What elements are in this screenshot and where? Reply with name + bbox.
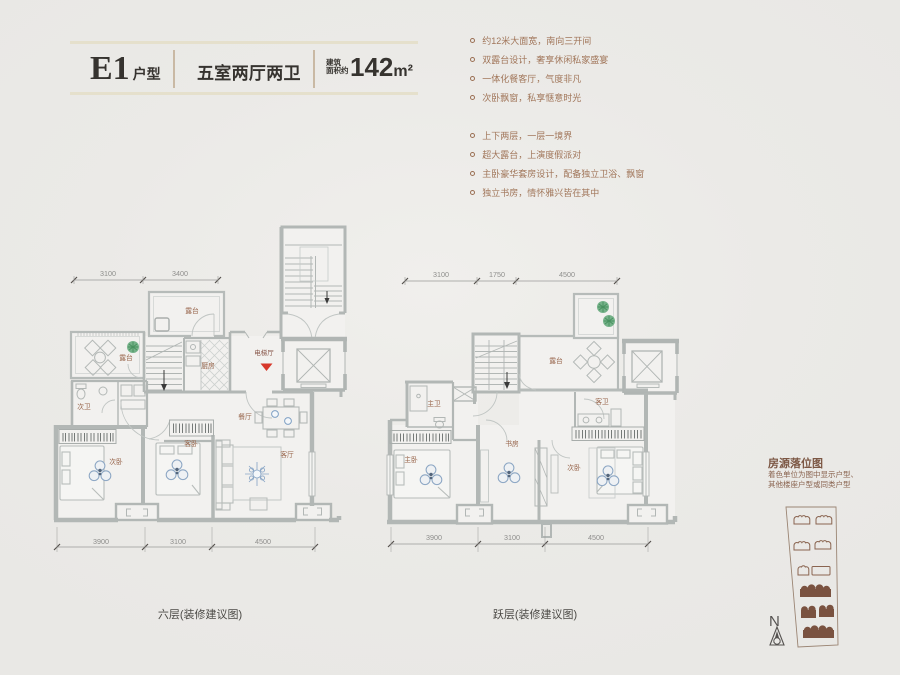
svg-text:4500: 4500 <box>255 537 271 546</box>
svg-text:主卧: 主卧 <box>404 455 418 464</box>
svg-text:露台: 露台 <box>185 306 199 315</box>
svg-text:3400: 3400 <box>172 269 188 278</box>
svg-text:3100: 3100 <box>504 533 520 542</box>
svg-text:3100: 3100 <box>170 537 186 546</box>
svg-text:1750: 1750 <box>489 270 505 279</box>
svg-text:3100: 3100 <box>433 270 449 279</box>
svg-text:次卫: 次卫 <box>77 402 91 411</box>
svg-text:餐厅: 餐厅 <box>238 412 252 421</box>
svg-text:露台: 露台 <box>549 356 563 365</box>
svg-text:3100: 3100 <box>100 269 116 278</box>
svg-text:露台: 露台 <box>119 353 133 362</box>
svg-text:4500: 4500 <box>588 533 604 542</box>
svg-text:3900: 3900 <box>93 537 109 546</box>
svg-text:客卧: 客卧 <box>184 439 198 448</box>
svg-text:主卫: 主卫 <box>427 399 441 408</box>
svg-text:书房: 书房 <box>505 439 519 448</box>
svg-text:N: N <box>769 613 780 630</box>
svg-text:电梯厅: 电梯厅 <box>254 348 274 357</box>
svg-text:客厅: 客厅 <box>280 450 294 459</box>
svg-text:次卧: 次卧 <box>109 457 123 466</box>
svg-text:厨房: 厨房 <box>201 361 215 370</box>
svg-text:3900: 3900 <box>426 533 442 542</box>
svg-text:客卫: 客卫 <box>595 397 609 406</box>
svg-text:次卧: 次卧 <box>567 463 581 472</box>
svg-text:4500: 4500 <box>559 270 575 279</box>
